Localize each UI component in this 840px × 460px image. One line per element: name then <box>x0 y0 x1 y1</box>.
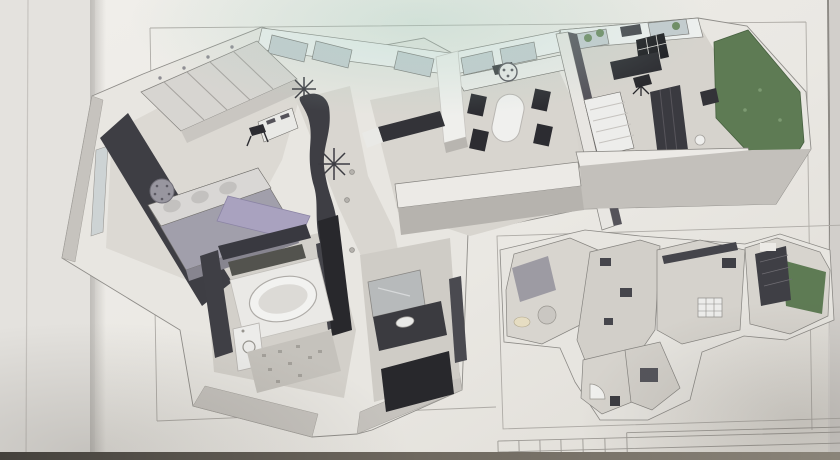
mini-dark-unit <box>620 288 632 297</box>
mini-washer <box>610 396 620 406</box>
mini-round-rug <box>538 306 556 324</box>
floor-lamp <box>695 135 705 145</box>
mini-dark-bed <box>640 368 658 382</box>
mini-cream-seat <box>514 317 530 327</box>
mini-dark-slats <box>755 246 791 306</box>
plant-foliage <box>584 34 592 42</box>
plant-star <box>292 77 316 101</box>
mini-white-unit <box>760 243 776 251</box>
right-backdrop-strip <box>830 0 840 460</box>
mini-dark-unit <box>600 258 611 266</box>
mini-grid-table <box>698 298 722 317</box>
plant-foliage <box>596 29 604 37</box>
mini-dark-unit <box>722 258 736 268</box>
photo-of-floor-plan <box>0 0 840 460</box>
study-bottom-wall <box>576 148 811 209</box>
plant-foliage <box>672 22 680 30</box>
washer-knob <box>242 330 245 333</box>
floor-plan-drawing <box>0 0 840 460</box>
mini-dark-unit <box>604 318 613 325</box>
pendant-lamp <box>499 63 517 81</box>
